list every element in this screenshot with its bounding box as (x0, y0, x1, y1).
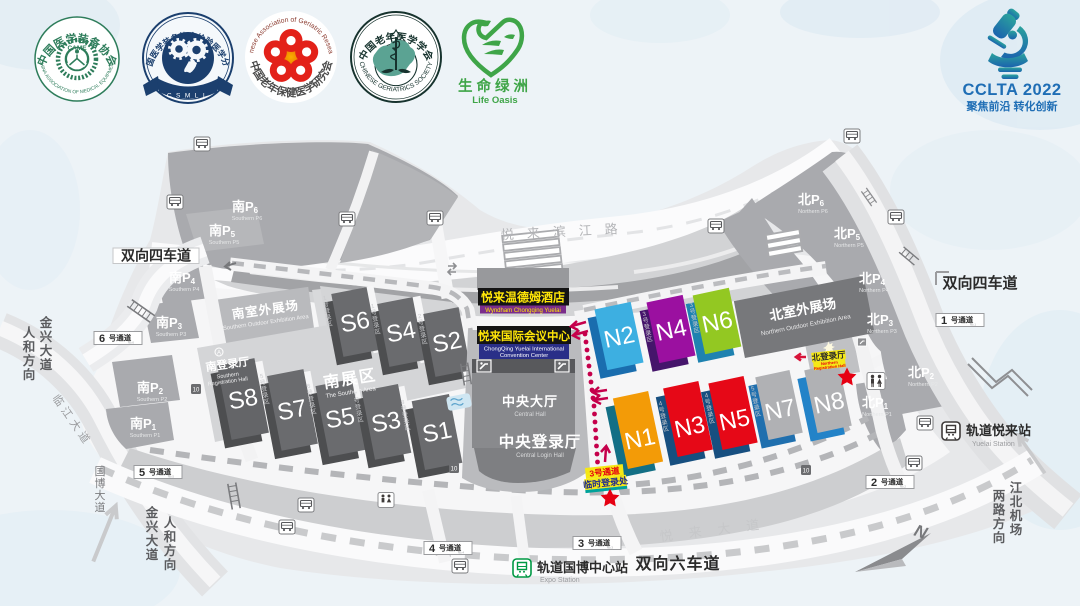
svg-text:人和方向: 人和方向 (163, 515, 177, 572)
svg-text:Northern P2: Northern P2 (908, 382, 938, 388)
svg-text:Southern P5: Southern P5 (209, 240, 240, 246)
svg-text:No.5: No.5 (168, 475, 174, 479)
svg-text:No.1: No.1 (970, 323, 976, 327)
svg-text:A: A (217, 351, 221, 357)
svg-text:Southern P2: Southern P2 (137, 397, 168, 403)
svg-text:Northern P1: Northern P1 (862, 412, 892, 418)
svg-text:Southern P6: Southern P6 (232, 216, 263, 222)
svg-text:No.6: No.6 (128, 341, 134, 345)
svg-text:S1: S1 (420, 416, 454, 448)
svg-text:1: 1 (941, 315, 947, 327)
svg-text:CCLTA 2022: CCLTA 2022 (962, 81, 1061, 99)
svg-text:Southern P4: Southern P4 (169, 287, 200, 293)
svg-text:Life Oasis: Life Oasis (472, 95, 517, 106)
svg-text:轨道国博中心站: 轨道国博中心站 (537, 560, 628, 575)
svg-text:S8: S8 (226, 383, 260, 415)
svg-text:双向四车道: 双向四车道 (942, 274, 1017, 292)
svg-text:Southern P1: Southern P1 (130, 433, 161, 439)
svg-text:S4: S4 (384, 316, 418, 348)
svg-text:10: 10 (803, 469, 810, 475)
svg-text:Northern P5: Northern P5 (834, 243, 864, 249)
svg-text:Convention Center: Convention Center (500, 353, 548, 359)
svg-text:Southern P3: Southern P3 (156, 332, 187, 338)
svg-text:金兴大道: 金兴大道 (39, 315, 53, 372)
svg-text:6: 6 (99, 333, 105, 345)
svg-text:国博大道: 国博大道 (95, 465, 106, 514)
svg-text:Northern P4: Northern P4 (859, 288, 889, 294)
svg-text:5: 5 (139, 467, 145, 479)
svg-text:Expo Station: Expo Station (540, 577, 580, 584)
svg-text:聚焦前沿 转化创新: 聚焦前沿 转化创新 (965, 99, 1057, 113)
svg-text:两路方向: 两路方向 (993, 489, 1006, 545)
svg-text:Central Hall: Central Hall (514, 412, 545, 418)
svg-text:人和方向: 人和方向 (22, 325, 36, 382)
svg-text:中央大厅: 中央大厅 (502, 394, 558, 409)
svg-text:S6: S6 (338, 306, 372, 338)
svg-text:S3: S3 (369, 406, 403, 438)
svg-text:Central Login Hall: Central Login Hall (516, 453, 564, 459)
svg-text:10: 10 (451, 467, 458, 473)
svg-text:Wyndham Chongqing Yuelai: Wyndham Chongqing Yuelai (485, 308, 561, 314)
svg-text:CSMLI: CSMLI (167, 93, 209, 100)
svg-text:Northern P6: Northern P6 (798, 209, 828, 215)
svg-text:No.4: No.4 (458, 551, 464, 555)
svg-text:双向六车道: 双向六车道 (635, 554, 720, 573)
svg-text:No.3: No.3 (607, 546, 613, 550)
svg-text:双向四车道: 双向四车道 (121, 248, 191, 264)
svg-text:悦来温德姆酒店: 悦来温德姆酒店 (481, 290, 565, 305)
svg-text:Yuelai Station: Yuelai Station (972, 441, 1015, 448)
svg-text:4: 4 (429, 543, 436, 555)
svg-text:10: 10 (193, 388, 200, 394)
svg-text:Northern P3: Northern P3 (867, 329, 897, 335)
svg-text:S5: S5 (323, 402, 357, 434)
svg-text:2: 2 (871, 477, 877, 489)
svg-text:S7: S7 (275, 394, 309, 426)
svg-text:ChongQing Yuelai International: ChongQing Yuelai International (484, 347, 564, 353)
svg-text:悦来国际会议中心: 悦来国际会议中心 (478, 329, 570, 343)
svg-text:金兴大道: 金兴大道 (145, 505, 159, 562)
svg-text:3: 3 (578, 538, 584, 550)
svg-text:生命绿洲: 生命绿洲 (458, 77, 532, 95)
svg-text:S2: S2 (430, 326, 464, 358)
svg-text:中央登录厅: 中央登录厅 (499, 432, 582, 451)
svg-text:No.2: No.2 (900, 485, 906, 489)
svg-text:江北机场: 江北机场 (1010, 480, 1023, 537)
